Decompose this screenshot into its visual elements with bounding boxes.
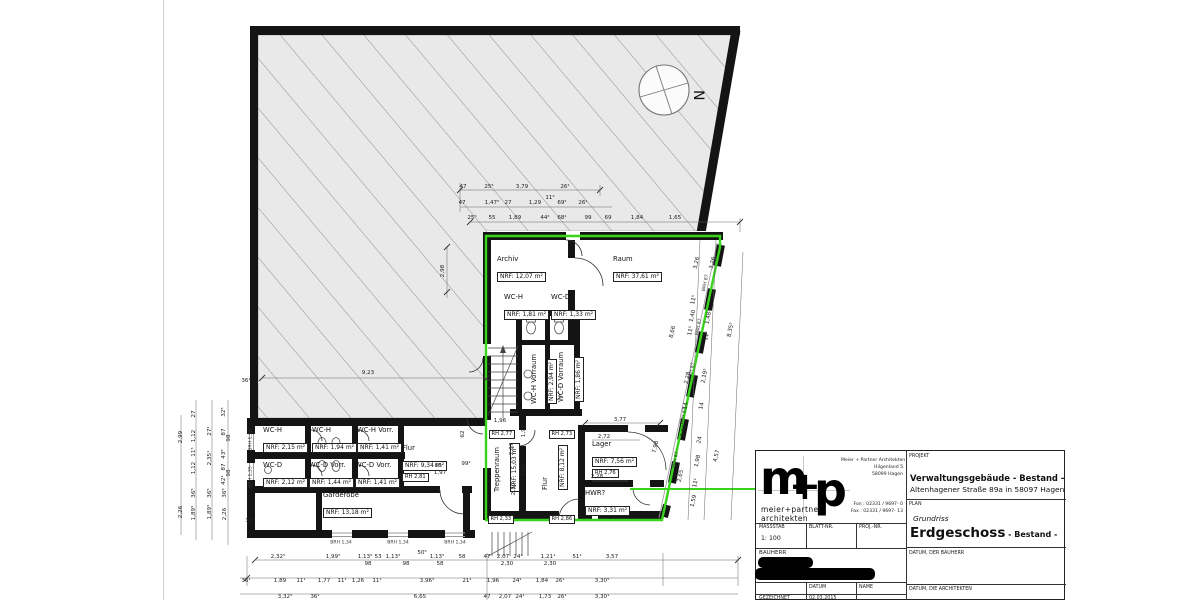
address-line: Hilgenland 5 (841, 464, 903, 471)
datum-architekten-label: DATUM, DIE ARCHITEKTEN (909, 587, 972, 592)
tb-row-line (756, 523, 906, 524)
bauherr-label: BAUHERR (759, 550, 786, 556)
tb-row-line (756, 594, 906, 595)
tb-col-line (856, 523, 857, 548)
tb-row-line (906, 584, 1066, 585)
plan-type: Grundriss (913, 514, 949, 523)
tb-row-line (756, 548, 906, 549)
redaction-bar (755, 568, 875, 580)
massstab-value: 1: 100 (761, 535, 781, 542)
north-letter: N (690, 90, 706, 100)
gezeichnet-label: GEZEICHNET (759, 596, 790, 600)
tb-col-line (806, 523, 807, 548)
logo-wordmark-1: meier+partner (761, 505, 822, 514)
plan-label: PLAN (909, 502, 922, 507)
phone-line: Fon : 02331 / 9697- 0 (841, 501, 903, 508)
address-line: Meier + Partner Architekten (841, 457, 903, 464)
projekt-title: Verwaltungsgebäude - Bestand - (910, 473, 1064, 483)
projnr-label: PROJ.-NR. (859, 525, 882, 530)
tb-row-line (756, 582, 906, 583)
tb-row-line (906, 499, 1066, 500)
address-line: 58099 Hagen (841, 471, 903, 478)
blattnr-label: BLATT-NR. (809, 525, 833, 530)
tb-col-line (806, 582, 807, 600)
datum-bauherr-label: DATUM, DER BAUHERR (909, 551, 964, 556)
name-label: NAME (859, 585, 873, 590)
drawing-sheet: N (0, 0, 1200, 600)
gezeichnet-datum: 02.03.2015 (809, 596, 836, 600)
wing-walls (247, 418, 487, 538)
titleblock-divider (906, 451, 907, 600)
architect-phone: Fon : 02331 / 9697- 0 Fax : 02331 / 9697… (841, 501, 903, 515)
logo-wordmark-2: architekten (761, 514, 808, 523)
tb-col-line (856, 582, 857, 600)
projekt-subtitle: Altenhagener Straße 89a in 58097 Hagen (910, 485, 1064, 494)
plan-title-main: Erdgeschoss (910, 525, 1005, 541)
massstab-label: MASSSTAB (759, 525, 785, 530)
titleblock: m + p meier+partner architekten Meier + … (755, 450, 1065, 600)
tb-row-line (906, 547, 1066, 548)
redaction-bar (758, 557, 813, 568)
datum-label: DATUM (809, 585, 826, 590)
architect-address: Meier + Partner Architekten Hilgenland 5… (841, 457, 903, 478)
phone-line: Fax : 02331 / 9697- 13 (841, 508, 903, 515)
projekt-label: PROJEKT (909, 454, 929, 459)
plan-title: Erdgeschoss - Bestand - (910, 525, 1057, 541)
plan-title-suffix: - Bestand - (1005, 530, 1057, 539)
